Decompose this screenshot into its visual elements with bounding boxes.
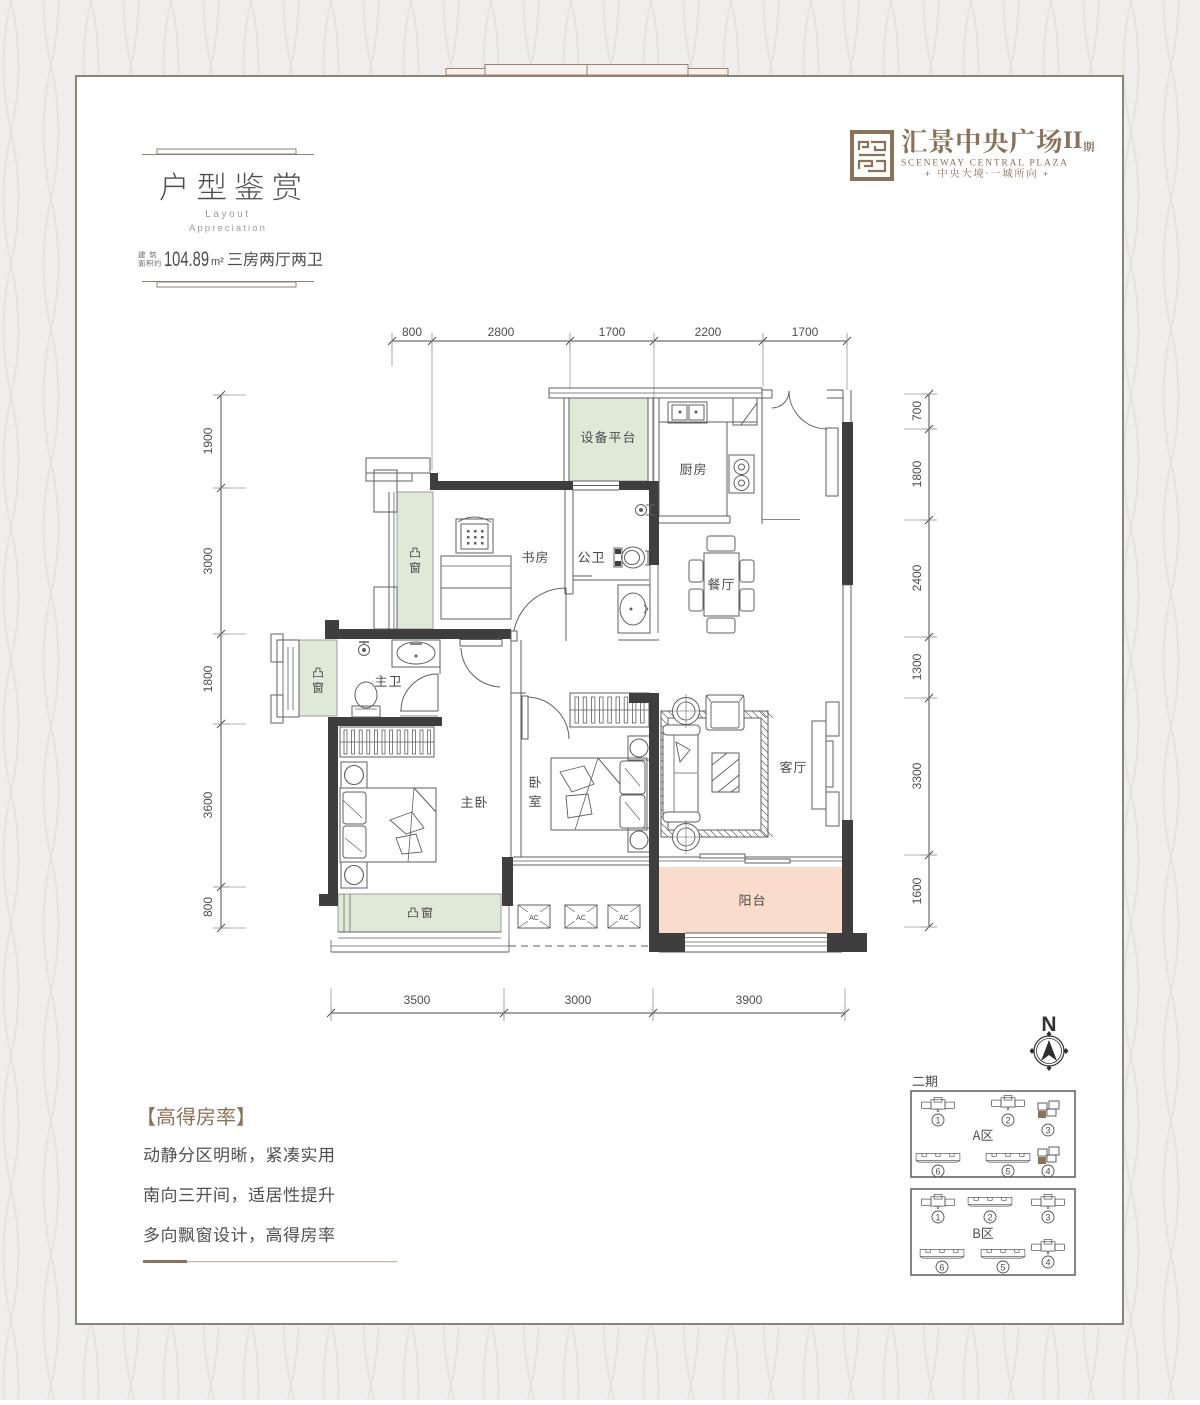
svg-text:m²: m²: [211, 256, 224, 268]
svg-text:+: +: [925, 169, 930, 179]
svg-text:5: 5: [1005, 1167, 1010, 1177]
svg-text:4: 4: [1045, 1258, 1050, 1268]
svg-text:2: 2: [987, 1213, 992, 1223]
svg-text:2800: 2800: [488, 325, 515, 339]
svg-text:3: 3: [1045, 1213, 1050, 1223]
svg-text:1800: 1800: [910, 460, 924, 487]
svg-text:3300: 3300: [910, 762, 924, 789]
svg-text:3600: 3600: [201, 791, 215, 818]
svg-text:3: 3: [1045, 1126, 1050, 1136]
svg-text:5: 5: [1000, 1263, 1005, 1273]
svg-text:2200: 2200: [695, 325, 722, 339]
svg-text:700: 700: [910, 401, 924, 421]
svg-text:2: 2: [1005, 1116, 1010, 1126]
svg-text:3500: 3500: [404, 993, 431, 1007]
svg-text:Appreciation: Appreciation: [189, 223, 267, 234]
svg-text:AC: AC: [529, 915, 539, 922]
svg-text:3000: 3000: [201, 547, 215, 574]
svg-text:4: 4: [1045, 1167, 1050, 1177]
svg-text:1900: 1900: [201, 427, 215, 454]
svg-text:1800: 1800: [201, 665, 215, 692]
svg-text:3900: 3900: [736, 993, 763, 1007]
svg-text:+: +: [1043, 169, 1048, 179]
svg-text:II: II: [1063, 127, 1082, 154]
svg-text:6: 6: [935, 1167, 940, 1177]
svg-text:1: 1: [935, 1213, 940, 1223]
svg-text:1700: 1700: [792, 325, 819, 339]
svg-text:6: 6: [939, 1263, 944, 1273]
svg-text:AC: AC: [619, 915, 629, 922]
svg-text:800: 800: [402, 325, 422, 339]
svg-text:Layout: Layout: [205, 209, 251, 220]
svg-text:AC: AC: [576, 915, 586, 922]
svg-text:2400: 2400: [910, 564, 924, 591]
svg-text:1700: 1700: [599, 325, 626, 339]
svg-text:800: 800: [201, 897, 215, 917]
svg-text:1: 1: [935, 1116, 940, 1126]
svg-text:104.89: 104.89: [164, 248, 209, 271]
svg-text:1300: 1300: [910, 653, 924, 680]
svg-text:1600: 1600: [910, 877, 924, 904]
svg-text:3000: 3000: [565, 993, 592, 1007]
